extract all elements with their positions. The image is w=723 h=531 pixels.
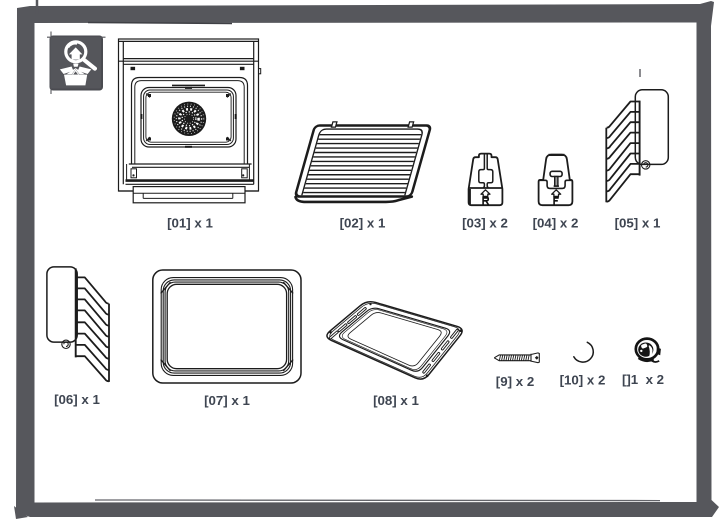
svg-text:[04] x 2: [04] x 2 [533, 216, 579, 231]
svg-text:[07] x 1: [07] x 1 [204, 393, 250, 408]
svg-text:[08] x 1: [08] x 1 [373, 393, 419, 408]
svg-text:[01] x 1: [01] x 1 [167, 216, 213, 231]
svg-text:[]1 x 2: []1 x 2 [622, 372, 664, 387]
svg-text:[9] x 2: [9] x 2 [496, 374, 534, 389]
svg-text:[05] x 1: [05] x 1 [615, 216, 661, 231]
svg-text:[10] x 2: [10] x 2 [560, 373, 606, 388]
svg-text:[06] x 1: [06] x 1 [54, 392, 100, 407]
svg-text:[02] x 1: [02] x 1 [340, 216, 386, 231]
svg-text:[03] x 2: [03] x 2 [462, 216, 508, 231]
